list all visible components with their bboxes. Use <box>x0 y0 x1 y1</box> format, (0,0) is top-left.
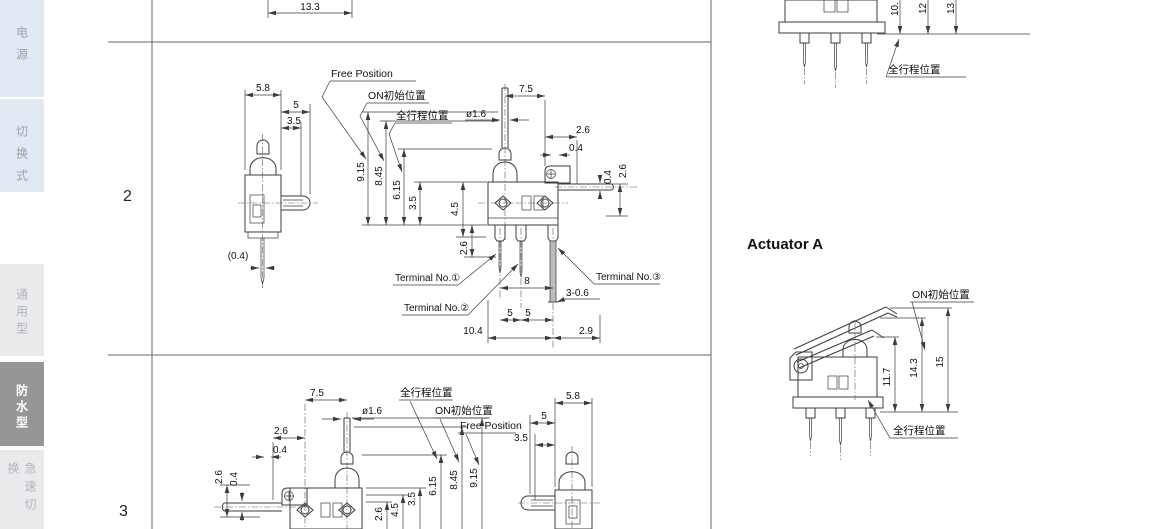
dim-15: 15 <box>935 356 946 368</box>
sidebar-tab-snap[interactable]: 急速切换 <box>0 450 44 529</box>
sidebar-tab-toggle[interactable]: 切换式 <box>0 99 44 192</box>
dim-9-15: 9.15 <box>356 162 367 182</box>
label-free-position-row3: Free Position <box>460 420 522 432</box>
dim-0-4-right: 0.4 <box>569 143 583 154</box>
sidebar-tab-waterproof[interactable]: 防水型 <box>0 362 44 446</box>
dim-5b: 5 <box>525 308 531 319</box>
label-terminal-3: Terminal No.③ <box>596 272 661 283</box>
dim-2-6-row3: 2.6 <box>274 426 288 437</box>
dim-0-4-paren: (0.4) <box>228 251 249 262</box>
top-right-partial: 10. 12 13 全行程位置 <box>779 0 1030 88</box>
dim-12-cut: 12 <box>918 2 929 14</box>
label-on-initial-row3: ON初始位置 <box>435 404 493 417</box>
row2-side-view: 5.8 5 3.5 (0.4) <box>228 83 318 288</box>
sidebar-tab-general-label: 通用型 <box>14 288 31 356</box>
actuator-a-heading: Actuator A <box>747 236 823 253</box>
dim-8-45-row3: 8.45 <box>449 470 460 490</box>
dim-14-3: 14.3 <box>909 358 920 378</box>
table-grid <box>108 0 711 529</box>
dim-0-4-row3: 0.4 <box>273 445 287 456</box>
dim-3-0-6: 3-0.6 <box>566 288 589 299</box>
label-terminal-1: Terminal No.① <box>395 273 460 284</box>
dim-8: 8 <box>524 276 530 287</box>
dim-0-4-vert: 0.4 <box>603 170 614 184</box>
dim-10-cut: 10. <box>890 2 901 16</box>
label-on-initial-actuator: ON初始位置 <box>912 288 970 301</box>
dim-5-8-row3: 5.8 <box>566 391 580 402</box>
dim-5: 5 <box>293 100 299 111</box>
dim-13-cut: 13 <box>946 2 957 14</box>
dim-3-5-row3-side: 3.5 <box>514 433 528 444</box>
dim-6-15: 6.15 <box>392 180 403 200</box>
actuator-a-drawing: 11.7 14.3 15 ON初始位置 全行程位置 <box>790 288 974 460</box>
dim-5a: 5 <box>507 308 513 319</box>
label-terminal-2: Terminal No.② <box>404 303 469 314</box>
row-number-3: 3 <box>119 503 128 521</box>
top-partial-dimension: 13.3 <box>268 0 352 18</box>
sidebar-tab-toggle-label: 切换式 <box>14 125 31 192</box>
sidebar-tab-waterproof-label: 防水型 <box>14 384 31 446</box>
drawing-canvas: 13.3 5.8 5 <box>0 0 1150 529</box>
label-full-stroke-topright: 全行程位置 <box>888 63 941 76</box>
sidebar-tab-power-label: 电源 <box>14 26 31 97</box>
dim-10-4: 10.4 <box>463 326 483 337</box>
label-on-initial: ON初始位置 <box>368 89 426 102</box>
dim-3-5-row3: 3.5 <box>407 492 418 506</box>
dim-dia-1-6-row3: ø1.6 <box>362 406 382 417</box>
label-full-stroke: 全行程位置 <box>396 109 449 122</box>
dim-5-row3: 5 <box>541 411 547 422</box>
row-number-2: 2 <box>123 188 132 206</box>
dim-2-6-vert: 2.6 <box>618 164 629 178</box>
dim-7-5: 7.5 <box>519 84 533 95</box>
dim-8-45: 8.45 <box>374 166 385 186</box>
dim-2-6-right: 2.6 <box>576 125 590 136</box>
dim-11-7: 11.7 <box>882 367 893 386</box>
dim-9-15-row3: 9.15 <box>469 468 480 488</box>
row2-height-stack: 9.15 8.45 6.15 3.5 Free Position ON初始位置 … <box>322 68 498 225</box>
dim-3-5-body: 3.5 <box>408 196 419 210</box>
dim-4-5-left: 4.5 <box>450 202 461 216</box>
sidebar-tab-power[interactable]: 电源 <box>0 0 44 97</box>
row2-front-view: 7.5 ø1.6 2.6 0.4 0.4 2.6 4.5 2.6 <box>393 84 661 348</box>
row3-front-view: 7.5 ø1.6 2.6 0.4 2.6 0.4 2.6 4.5 <box>214 388 408 529</box>
dim-2-6-vert-row3: 2.6 <box>214 470 225 484</box>
dim-2-6-left: 2.6 <box>459 241 470 255</box>
dim-dia-1-6: ø1.6 <box>466 109 486 120</box>
sidebar-tab-general[interactable]: 通用型 <box>0 264 44 356</box>
dim-7-5-row3: 7.5 <box>310 388 324 399</box>
dim-4-5-bottom-row3: 4.5 <box>390 503 401 517</box>
dim-13-3: 13.3 <box>300 2 320 13</box>
dim-5-8: 5.8 <box>256 83 270 94</box>
label-full-stroke-actuator: 全行程位置 <box>893 424 946 437</box>
dim-0-4-vert-row3: 0.4 <box>229 472 240 486</box>
row3-side-view: 5.8 5 3.5 <box>514 391 600 529</box>
datasheet-page: 13.3 5.8 5 <box>0 0 1150 529</box>
dim-2-6-bottom-row3: 2.6 <box>374 507 385 521</box>
dim-3-5: 3.5 <box>287 116 301 127</box>
label-free-position: Free Position <box>331 68 393 80</box>
dim-6-15-row3: 6.15 <box>428 476 439 496</box>
sidebar-tab-snap-label: 急速切换 <box>5 462 39 529</box>
dim-2-9: 2.9 <box>579 326 593 337</box>
label-full-stroke-row3: 全行程位置 <box>400 386 453 399</box>
